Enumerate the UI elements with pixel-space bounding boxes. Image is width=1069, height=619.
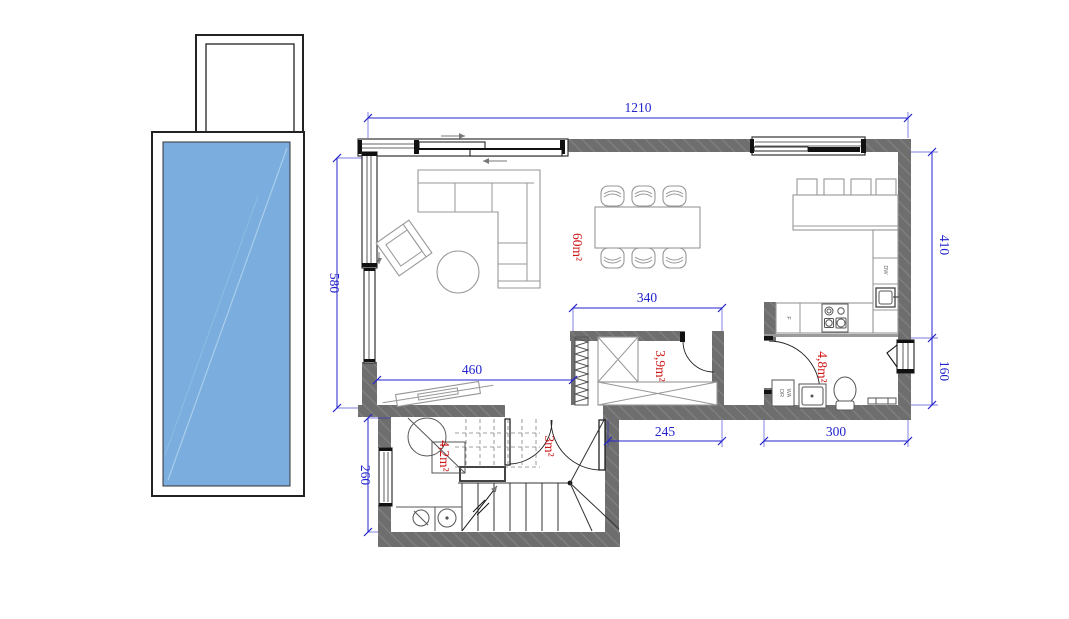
floor-plan-drawing: DW F DR WA (0, 0, 1069, 619)
toilet-icon (834, 377, 856, 403)
window-bathroom-left (379, 448, 392, 506)
dim-label: 300 (826, 424, 847, 439)
floor-plan-page: DW F DR WA (0, 0, 1069, 619)
window-left-upper (362, 152, 377, 268)
bar-stool (851, 179, 871, 196)
stair-landing-edge (460, 467, 505, 481)
dryer-label: DR (778, 389, 784, 397)
washer-label: WA (785, 389, 791, 398)
dining-table (595, 207, 700, 248)
bar-stool (876, 179, 896, 196)
dim-label: 245 (655, 424, 676, 439)
dining-set (595, 186, 700, 268)
dim-label: 410 (937, 235, 952, 256)
room-label-hall: 3m² (542, 435, 557, 456)
dim-label: 580 (327, 273, 342, 294)
bar-stool (797, 179, 817, 196)
dishwasher-label: DW (882, 265, 888, 275)
room-label-living: 60m² (570, 233, 585, 261)
kitchen-counter-right (873, 230, 898, 333)
sliding-window-top-right (750, 137, 866, 155)
coffee-table (437, 251, 479, 293)
dim-label: 160 (937, 361, 952, 382)
pool-deck (196, 35, 303, 132)
dim-label: 260 (358, 465, 373, 486)
dim-label: 460 (462, 362, 483, 377)
bar-stool (824, 179, 844, 196)
room-label-storage: 3,9m² (653, 350, 668, 381)
bar-counter (793, 195, 898, 230)
room-label-bathroom: 4,2m² (437, 440, 452, 471)
dim-label: 1210 (625, 100, 652, 115)
dim-label: 340 (637, 290, 658, 305)
room-label-laundry: 4,8m² (815, 351, 830, 382)
pool (152, 132, 304, 496)
kitchen-laundry-divider (764, 334, 898, 337)
